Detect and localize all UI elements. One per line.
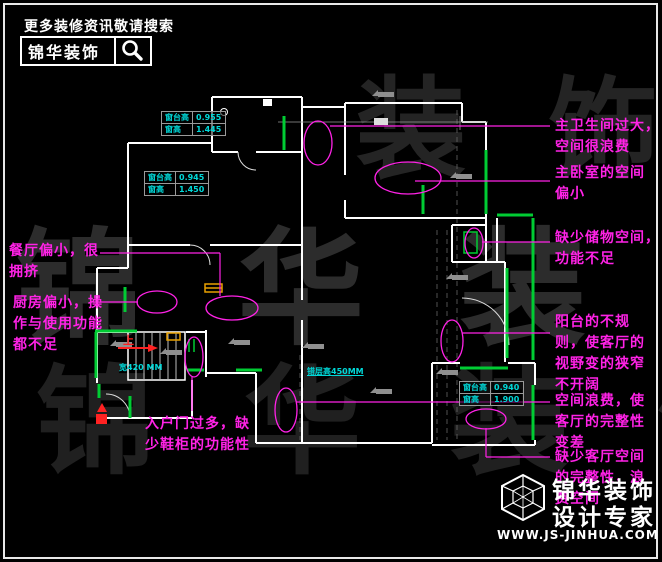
dim-label: 窗台高 <box>162 112 193 123</box>
dim-value: 1.900 <box>491 394 523 405</box>
table-row: 窗高 1.450 <box>145 183 208 195</box>
dim-label: 窗高 <box>145 184 176 195</box>
annotation-master-bath: 主卫生间过大， 空间很浪费 <box>555 116 660 158</box>
dim-value: 0.940 <box>491 382 523 393</box>
dim-value: 0.955 <box>193 112 225 123</box>
annotation-master-bedroom: 主卧室的空间 偏小 <box>555 163 645 205</box>
table-row: 窗台高 0.940 <box>460 382 523 393</box>
search-slogan: 更多装修资讯敬请搜索 <box>24 16 174 36</box>
dim-value: 0.945 <box>176 172 208 183</box>
dim-label: 窗高 <box>460 394 491 405</box>
annotation-entry: 入户门过多，缺 少鞋柜的功能性 <box>145 414 250 456</box>
dim-value: 1.450 <box>176 184 208 195</box>
entry-direction-arrow <box>96 344 158 424</box>
company-cube-logo-icon <box>500 473 546 527</box>
table-row: 窗高 1.900 <box>460 393 523 405</box>
cad-floorplan-canvas: 锦 华 装 饰 装 饰 锦 华 装 饰 <box>0 0 662 562</box>
footer-website-url: WWW.JS-JINHUA.COM <box>497 528 659 542</box>
dim-value: 1.445 <box>193 124 225 135</box>
stair-up-label: 上 <box>123 332 134 348</box>
annotation-storage: 缺少储物空间， 功能不足 <box>555 228 660 270</box>
dim-label: 窗高 <box>162 124 193 135</box>
annotation-wasted-space: 空间浪费，使 客厅的完整性 变差 <box>555 391 645 454</box>
dim-label: 窗台高 <box>460 382 491 393</box>
table-row: 窗台高 0.945 <box>145 172 208 183</box>
brand-name: 锦华装饰 <box>22 38 114 64</box>
annotation-dining: 餐厅偏小，很 拥挤 <box>9 241 99 283</box>
brand-search-box: 锦华装饰 <box>20 36 152 66</box>
footer-brand-tagline: 设计专家 <box>552 498 656 532</box>
annotation-kitchen: 厨房偏小，操 作与使用功能 都不足 <box>13 293 103 356</box>
window-dim-table-3: 窗台高 0.940 窗高 1.900 <box>459 381 524 406</box>
width-note-label: 宽420 MM <box>119 362 162 373</box>
dim-label: 窗台高 <box>145 172 176 183</box>
split-level-note-label: 错层高450MM <box>307 366 364 377</box>
table-row: 窗台高 0.955 <box>162 112 225 123</box>
window-dim-table-1: 窗台高 0.955 窗高 1.445 <box>161 111 226 136</box>
table-row: 窗高 1.445 <box>162 123 225 135</box>
magnifier-icon <box>116 38 150 64</box>
annotation-balcony: 阳台的不规 则，使客厅的 视野变的狭窄 不开阔 <box>555 312 645 396</box>
window-dim-table-2: 窗台高 0.945 窗高 1.450 <box>144 171 209 196</box>
